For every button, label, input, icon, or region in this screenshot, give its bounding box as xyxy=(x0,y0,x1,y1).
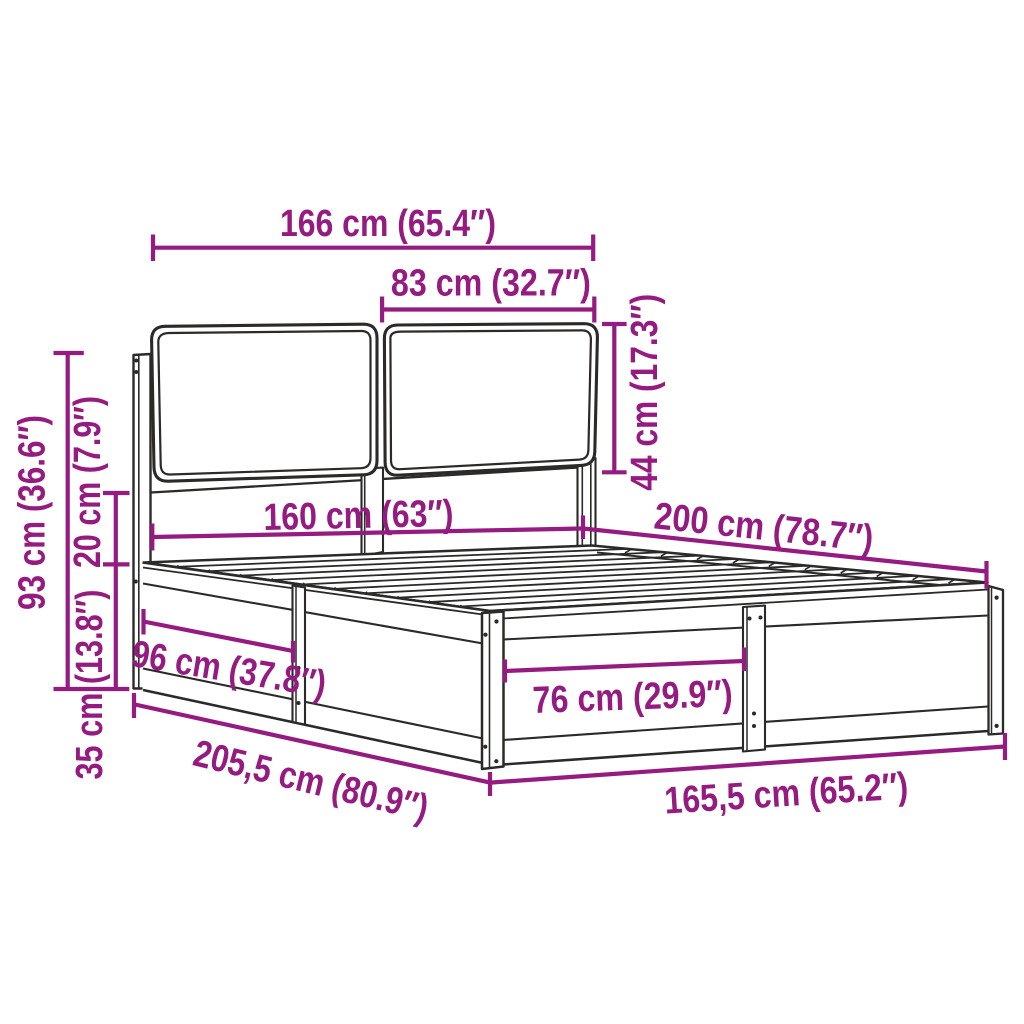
svg-text:160 cm (63″): 160 cm (63″) xyxy=(263,493,454,539)
svg-text:20 cm (7.9″): 20 cm (7.9″) xyxy=(67,396,109,568)
svg-text:83 cm (32.7″): 83 cm (32.7″) xyxy=(391,263,591,305)
svg-text:35 cm (13.8″): 35 cm (13.8″) xyxy=(69,590,111,780)
svg-text:44 cm (17.3″): 44 cm (17.3″) xyxy=(624,294,666,491)
svg-text:93 cm (36.6″): 93 cm (36.6″) xyxy=(11,415,53,610)
svg-text:76 cm (29.9″): 76 cm (29.9″) xyxy=(532,673,733,722)
svg-text:166 cm (65.4″): 166 cm (65.4″) xyxy=(280,203,496,245)
